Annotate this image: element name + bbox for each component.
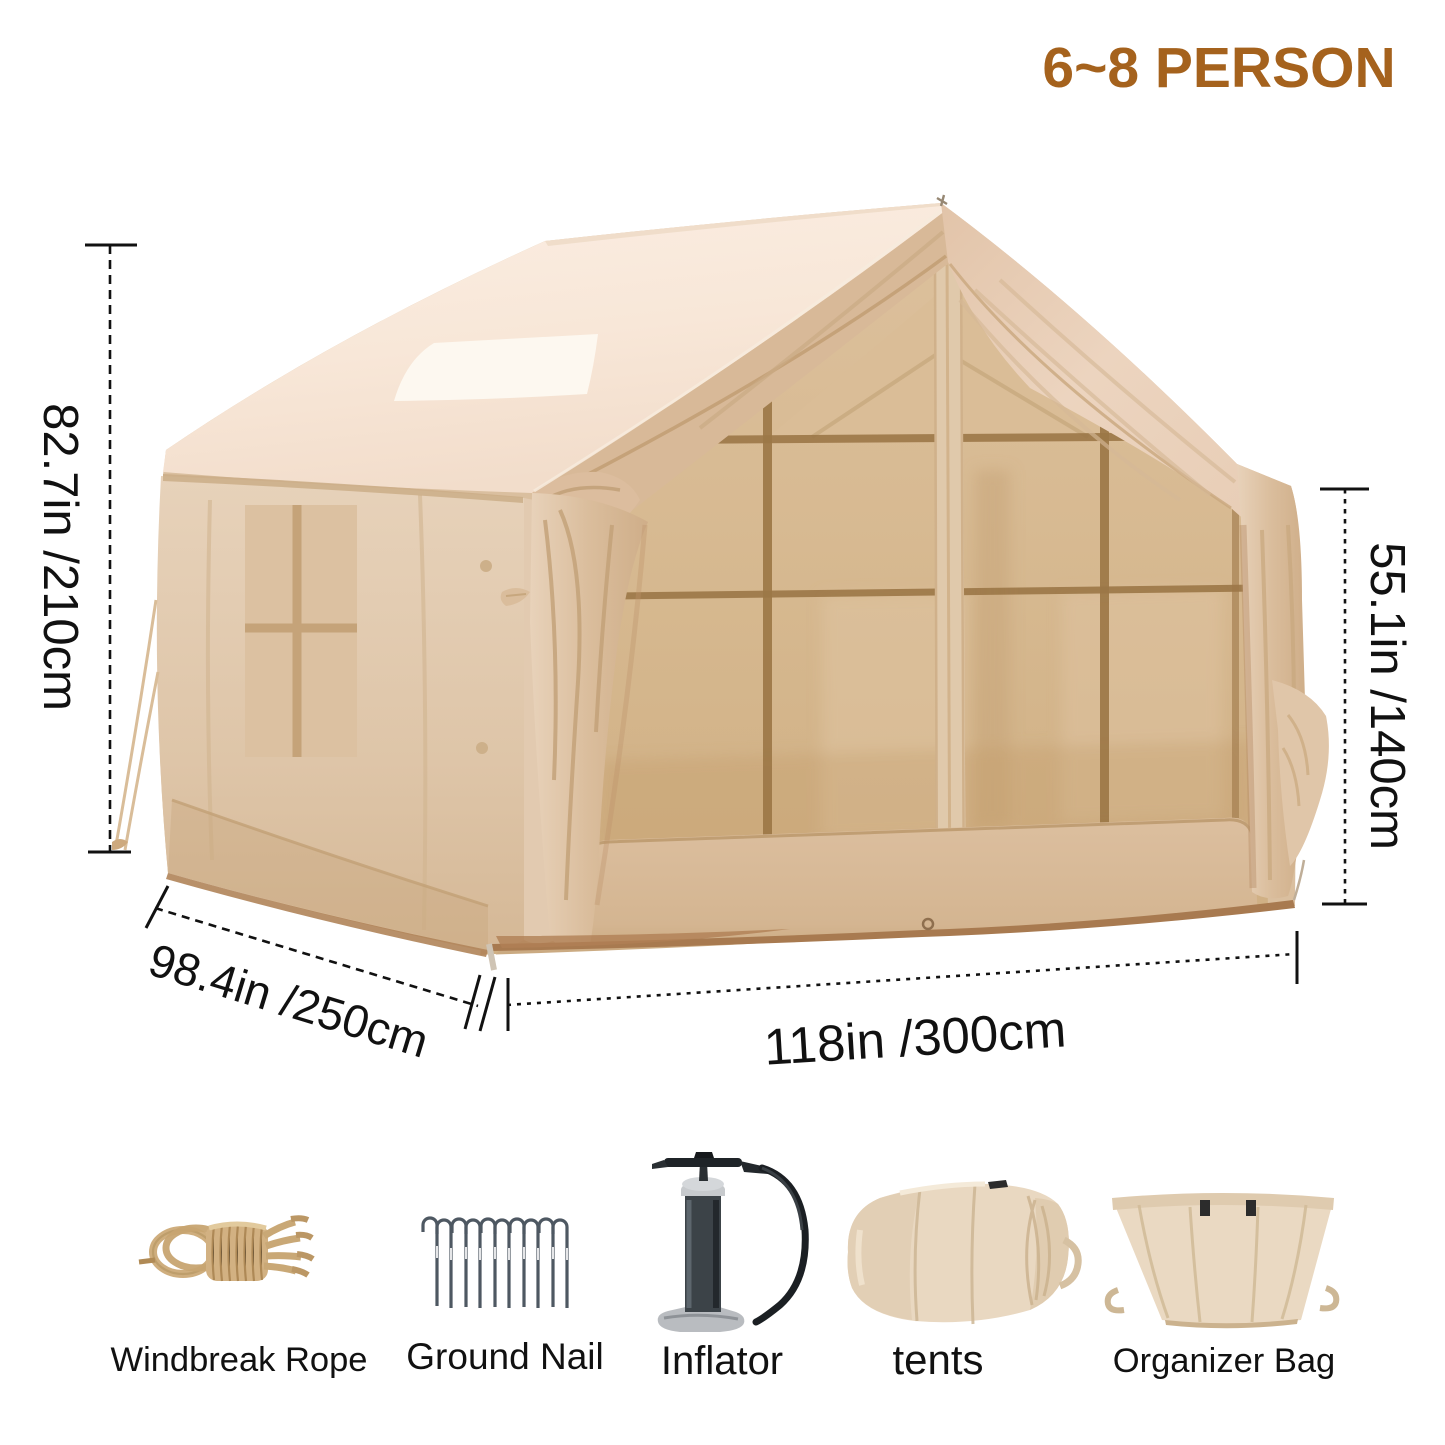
svg-text:6~8 PERSON: 6~8 PERSON xyxy=(1042,36,1395,100)
svg-text:tents: tents xyxy=(892,1336,983,1383)
svg-text:Inflator: Inflator xyxy=(661,1339,783,1383)
svg-text:Organizer Bag: Organizer Bag xyxy=(1113,1342,1335,1380)
svg-text:55.1in /140cm: 55.1in /140cm xyxy=(1360,542,1414,850)
svg-text:Windbreak Rope: Windbreak Rope xyxy=(111,1341,368,1379)
svg-text:Ground Nail: Ground Nail xyxy=(406,1336,603,1377)
svg-text:82.7in /210cm: 82.7in /210cm xyxy=(33,403,87,711)
